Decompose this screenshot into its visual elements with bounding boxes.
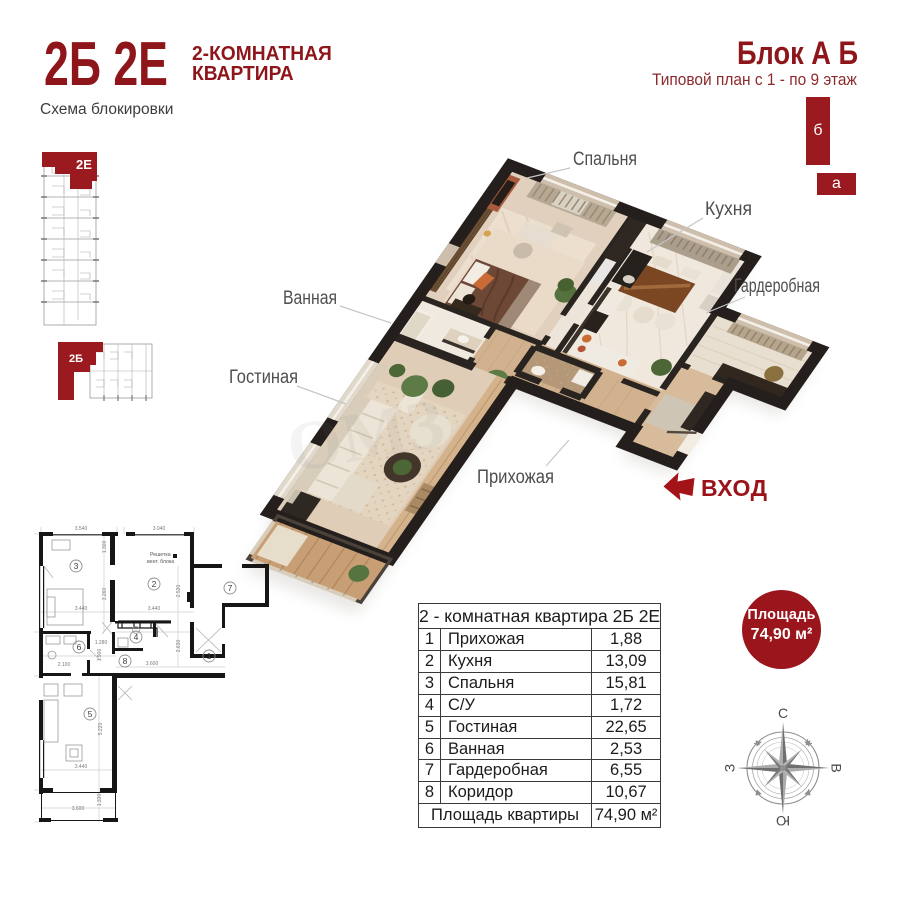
svg-text:5: 5 — [88, 709, 93, 719]
svg-text:3: 3 — [74, 561, 79, 571]
svg-text:З: З — [722, 764, 738, 772]
svg-text:Кухня: Кухня — [705, 199, 752, 220]
svg-text:Решетка: Решетка — [150, 552, 171, 558]
svg-text:3.040: 3.040 — [153, 526, 166, 532]
svg-text:2.100: 2.100 — [58, 662, 71, 668]
svg-text:вент. блока: вент. блока — [147, 559, 174, 565]
svg-text:1.330: 1.330 — [97, 794, 103, 807]
svg-text:8: 8 — [123, 656, 128, 666]
svg-text:Прихожая: Прихожая — [477, 467, 554, 488]
svg-text:Гостиная: Гостиная — [229, 367, 298, 388]
svg-text:6: 6 — [77, 642, 82, 652]
svg-text:3.600: 3.600 — [146, 661, 159, 667]
svg-text:4: 4 — [134, 632, 139, 642]
svg-text:3.440: 3.440 — [75, 764, 88, 770]
svg-text:1.300: 1.300 — [102, 541, 108, 554]
svg-text:С: С — [778, 705, 788, 721]
svg-text:Спальня: Спальня — [573, 149, 637, 170]
svg-text:3.440: 3.440 — [148, 606, 161, 612]
svg-text:Ю: Ю — [776, 813, 790, 829]
svg-text:1.280: 1.280 — [95, 640, 108, 646]
svg-text:7: 7 — [228, 583, 233, 593]
svg-text:В: В — [829, 763, 845, 772]
svg-text:3.600: 3.600 — [72, 806, 85, 812]
svg-text:2.630: 2.630 — [176, 640, 182, 653]
svg-text:ВХОД: ВХОД — [701, 475, 767, 501]
svg-text:Ванная: Ванная — [283, 288, 337, 309]
svg-text:2: 2 — [152, 579, 157, 589]
svg-text:3.260: 3.260 — [102, 588, 108, 601]
svg-text:5.220: 5.220 — [98, 723, 104, 736]
svg-text:3.440: 3.440 — [75, 606, 88, 612]
svg-text:3.540: 3.540 — [75, 526, 88, 532]
svg-text:2Б: 2Б — [69, 353, 83, 365]
svg-text:Гардеробная: Гардеробная — [734, 276, 820, 297]
svg-text:1.900: 1.900 — [97, 649, 103, 662]
svg-text:1: 1 — [207, 651, 212, 661]
svg-text:2Е: 2Е — [76, 157, 92, 172]
svg-text:2.530: 2.530 — [176, 585, 182, 598]
